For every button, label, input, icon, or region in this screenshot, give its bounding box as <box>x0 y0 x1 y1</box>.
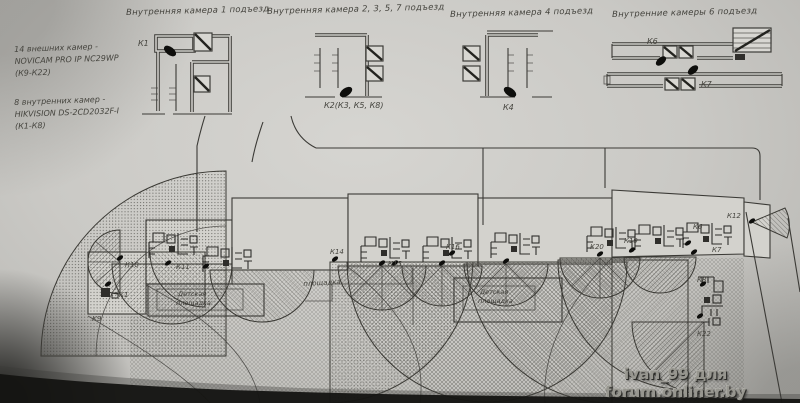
camera-label-k6: К6 <box>693 223 702 231</box>
detail-plan-entrance2357 <box>305 35 383 99</box>
camera-label-k4-detail: К4 <box>503 103 514 112</box>
camera-label-k2-detail: К2(К3, К5, К8) <box>324 101 384 110</box>
playground2-label-line1: Детская <box>480 288 508 296</box>
detail-plan-entrance1 <box>142 33 232 114</box>
camera-label-k1: К1 <box>119 291 128 299</box>
camera-label-k22: К22 <box>697 330 711 338</box>
camera-label-k10: К10 <box>125 261 139 269</box>
camera-label-k15: К15 <box>388 260 402 268</box>
photographed-cctv-plan: Внутренняя камера 1 подъезд Внутренняя к… <box>0 0 800 403</box>
detail-plan-entrance4 <box>463 31 553 99</box>
staircase-icon <box>733 28 771 60</box>
playground1-label-line2: площадка <box>176 299 211 307</box>
camera-label-k9: К9 <box>92 315 101 323</box>
detail-plan-entrance6 <box>604 28 782 90</box>
playground1-label-line1: Детская <box>178 290 206 298</box>
watermark-text: ivan_99 для forum.onliner.by <box>568 365 783 401</box>
camera-label-k8: К8 <box>697 276 706 284</box>
plan-drawing <box>0 0 800 403</box>
camera-label-k14: К14 <box>330 248 344 256</box>
playground2-label-line2: площадка <box>478 297 513 305</box>
camera-label-k6-detail: К6 <box>647 37 658 46</box>
external-cameras-spec: 14 внешних камер - NOVICAM PRO IP NC29WP… <box>14 40 119 80</box>
camera-label-k19: К19 <box>624 237 638 245</box>
camera-label-k7-detail: К7 <box>701 80 712 89</box>
camera-label-k12: К12 <box>727 212 741 220</box>
camera-label-k16: К16 <box>446 243 460 251</box>
internal-cameras-spec: 8 внутренних камер - HIKVISION DS-2CD203… <box>14 93 120 133</box>
camera-label-k1-detail: К1 <box>138 39 149 48</box>
camera-label-k11: К11 <box>176 263 190 271</box>
camera-label-k7: К7 <box>712 246 721 254</box>
camera-label-k20: К20 <box>590 243 604 251</box>
